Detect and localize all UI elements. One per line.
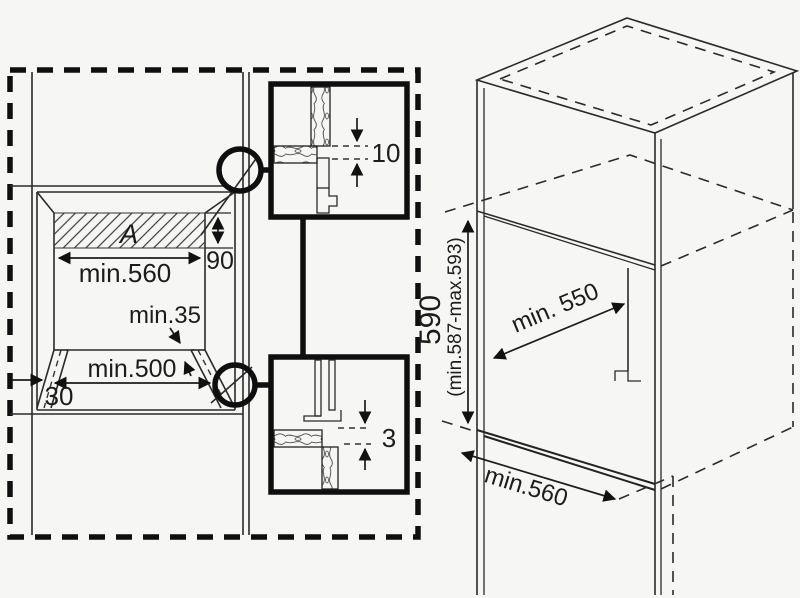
niche-depth-label: min. 550 — [507, 278, 602, 339]
cabinet-width-label: min.560 — [481, 461, 571, 512]
recess-height-label: 90 — [206, 247, 234, 275]
corner-clearance-label: min.35 — [129, 302, 201, 329]
detail-box-top: 10 — [271, 84, 407, 217]
wood-shelf-panel-section — [274, 430, 322, 447]
diagram-canvas: A 90 min.560 min.35 min.500 30 — [0, 0, 800, 598]
cabinet-top-face-inner — [500, 26, 774, 125]
niche-height-label: 590 — [414, 295, 447, 345]
dim-cabinet-width: min.560 — [462, 453, 615, 512]
cabinet-iso-view: 590 (min.587-max.593) min. 550 min.560 — [414, 18, 797, 595]
oven-top-profile-step — [317, 188, 337, 213]
oven-bottom-profile-step — [304, 410, 341, 421]
cabinet-top-face — [477, 18, 797, 133]
oven-bottom-flange-inner — [329, 360, 335, 410]
oven-installation-diagram: A 90 min.560 min.35 min.500 30 — [0, 0, 800, 598]
wood-front-trim-section — [311, 87, 330, 146]
oven-bottom-flange-outer — [315, 360, 321, 416]
corner-support-right — [191, 350, 235, 408]
niche-interior-lines — [615, 268, 641, 381]
dim-niche-depth: min. 550 — [494, 278, 624, 358]
niche-height-range-label: (min.587-max.593) — [445, 237, 466, 396]
cabinet-front-edges — [477, 80, 661, 595]
callout-circle-bottom — [211, 365, 272, 405]
wood-lower-trim-section — [322, 447, 338, 489]
dim-niche-height: 590 (min.587-max.593) — [414, 221, 468, 423]
oven-top-flange — [317, 158, 329, 188]
dim-niche-width: min.560 — [59, 258, 200, 288]
dim-top-gap: 10 — [332, 118, 400, 187]
base-opening-width-label: min.500 — [88, 355, 177, 383]
bottom-gap-label: 3 — [382, 423, 396, 453]
wood-top-panel-section — [274, 146, 317, 163]
corner-offset-label: 30 — [45, 381, 74, 411]
recess-label: A — [118, 219, 138, 249]
hidden-edges — [442, 155, 793, 595]
dim-base-opening-width: min.500 — [55, 355, 210, 383]
top-gap-label: 10 — [372, 138, 401, 168]
dim-bottom-gap: 3 — [338, 400, 396, 470]
niche-width-label: min.560 — [79, 258, 172, 288]
dim-corner-offset: 30 — [12, 380, 73, 411]
detail-box-bottom: 3 — [271, 357, 407, 492]
